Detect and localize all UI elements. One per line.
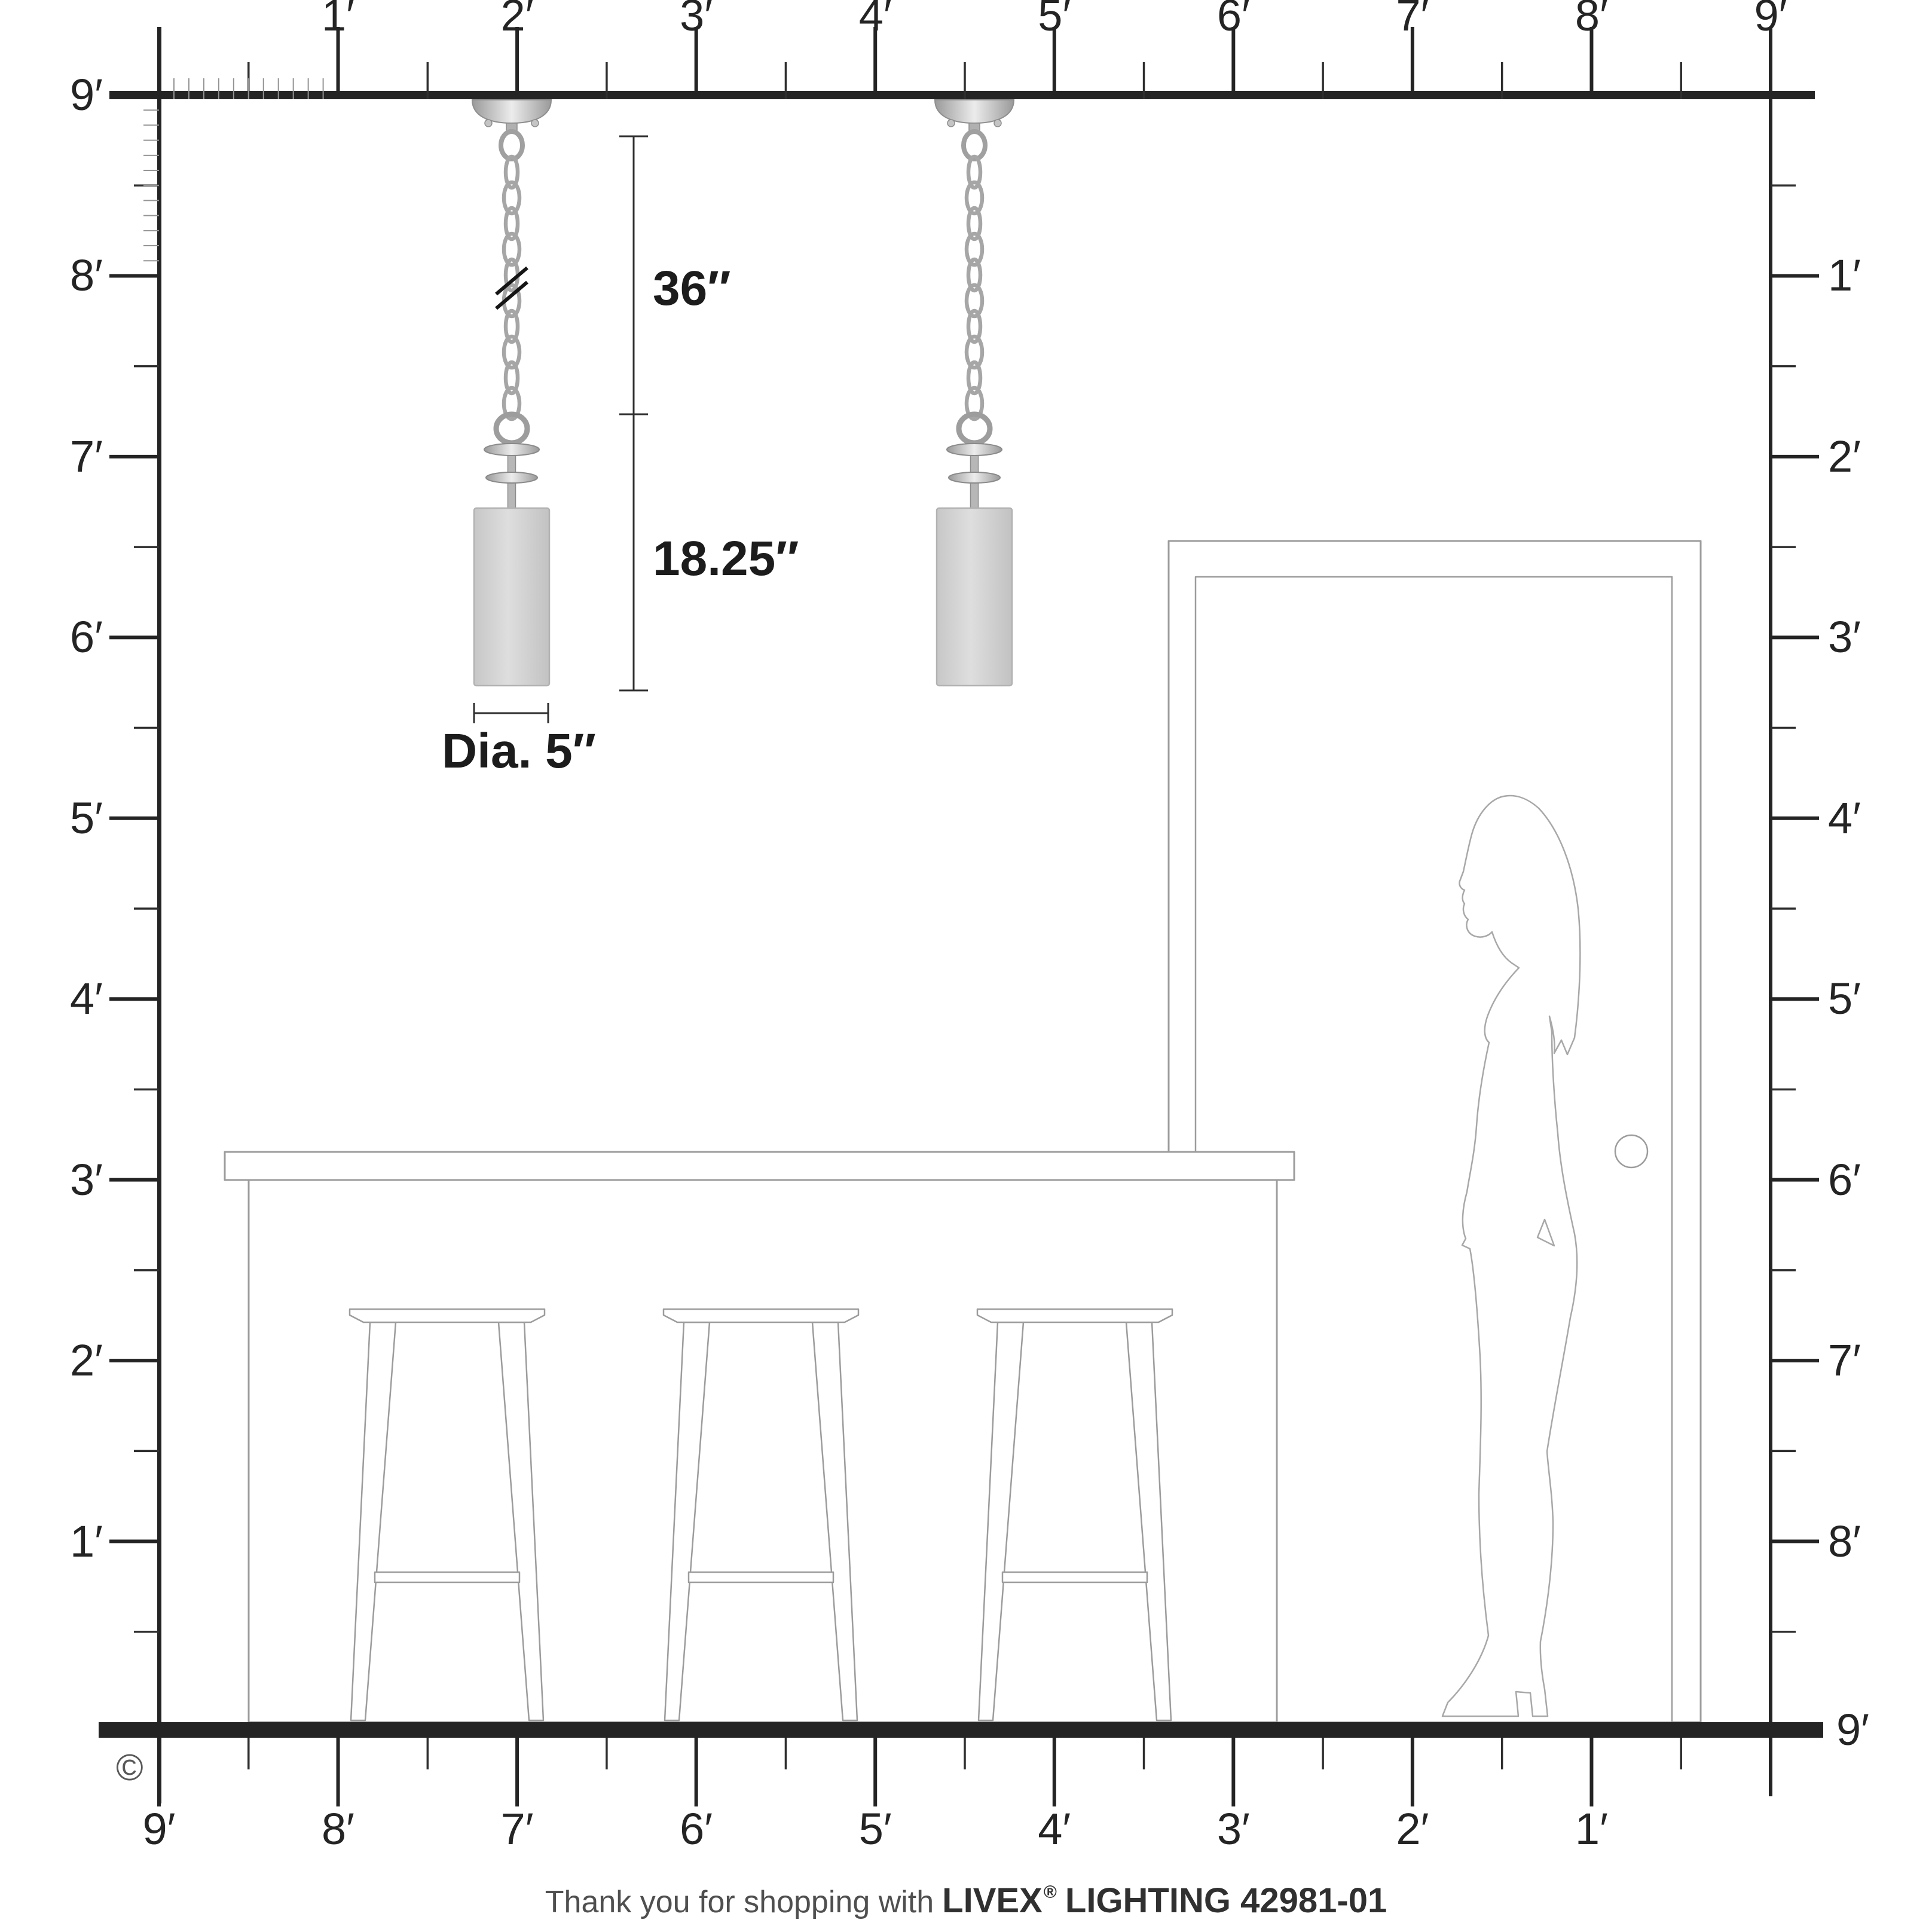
- island-countertop: [225, 1152, 1294, 1180]
- upper-bobeche: [484, 444, 539, 456]
- fixture-height-label: 18.25″: [653, 531, 799, 586]
- door-knob: [1615, 1135, 1647, 1167]
- left-wall-line: [157, 27, 161, 1803]
- canopy-finial: [485, 120, 492, 127]
- product-number: LIGHTING 42981-01: [1065, 1881, 1387, 1920]
- cylinder-shade: [474, 508, 549, 686]
- footer: Thank you for shopping withLIVEX®LIGHTIN…: [0, 1881, 1932, 1921]
- stool-seat: [977, 1309, 1172, 1322]
- stool-footrest: [375, 1572, 519, 1582]
- floor-line: [99, 1722, 1823, 1738]
- canopy-finial: [994, 120, 1001, 127]
- footer-message: Thank you for shopping with: [545, 1885, 934, 1919]
- diagram-scene: 36″ 18.25″ Dia. 5″: [0, 0, 1932, 1932]
- stool-footrest: [1002, 1572, 1147, 1582]
- canopy: [935, 100, 1014, 123]
- upper-bobeche: [947, 444, 1002, 456]
- stool-seat: [664, 1309, 858, 1322]
- stool-seat: [350, 1309, 545, 1322]
- pendant-lights: [472, 100, 1014, 686]
- stool-footrest: [689, 1572, 833, 1582]
- pendant-light: [935, 100, 1014, 686]
- copyright-symbol: ©: [116, 1747, 143, 1789]
- canopy: [472, 100, 551, 123]
- shade-diameter-label: Dia. 5″: [442, 724, 596, 778]
- ceiling-line: [109, 91, 1815, 99]
- brand-name: LIVEX: [942, 1881, 1043, 1920]
- right-wall-line: [1769, 27, 1772, 1796]
- island-body: [249, 1180, 1277, 1722]
- cylinder-shade: [937, 508, 1012, 686]
- registered-trademark-icon: ®: [1044, 1882, 1057, 1902]
- canopy-finial: [531, 120, 539, 127]
- canopy-finial: [947, 120, 955, 127]
- lower-bobeche: [949, 472, 1000, 483]
- scale-diagram: 36″ 18.25″ Dia. 5″ 1′2′3′4′5′6′7′8′9′9′8…: [0, 0, 1932, 1932]
- pendant-light: [472, 100, 551, 686]
- lower-bobeche: [486, 472, 537, 483]
- chain-length-label: 36″: [653, 261, 731, 316]
